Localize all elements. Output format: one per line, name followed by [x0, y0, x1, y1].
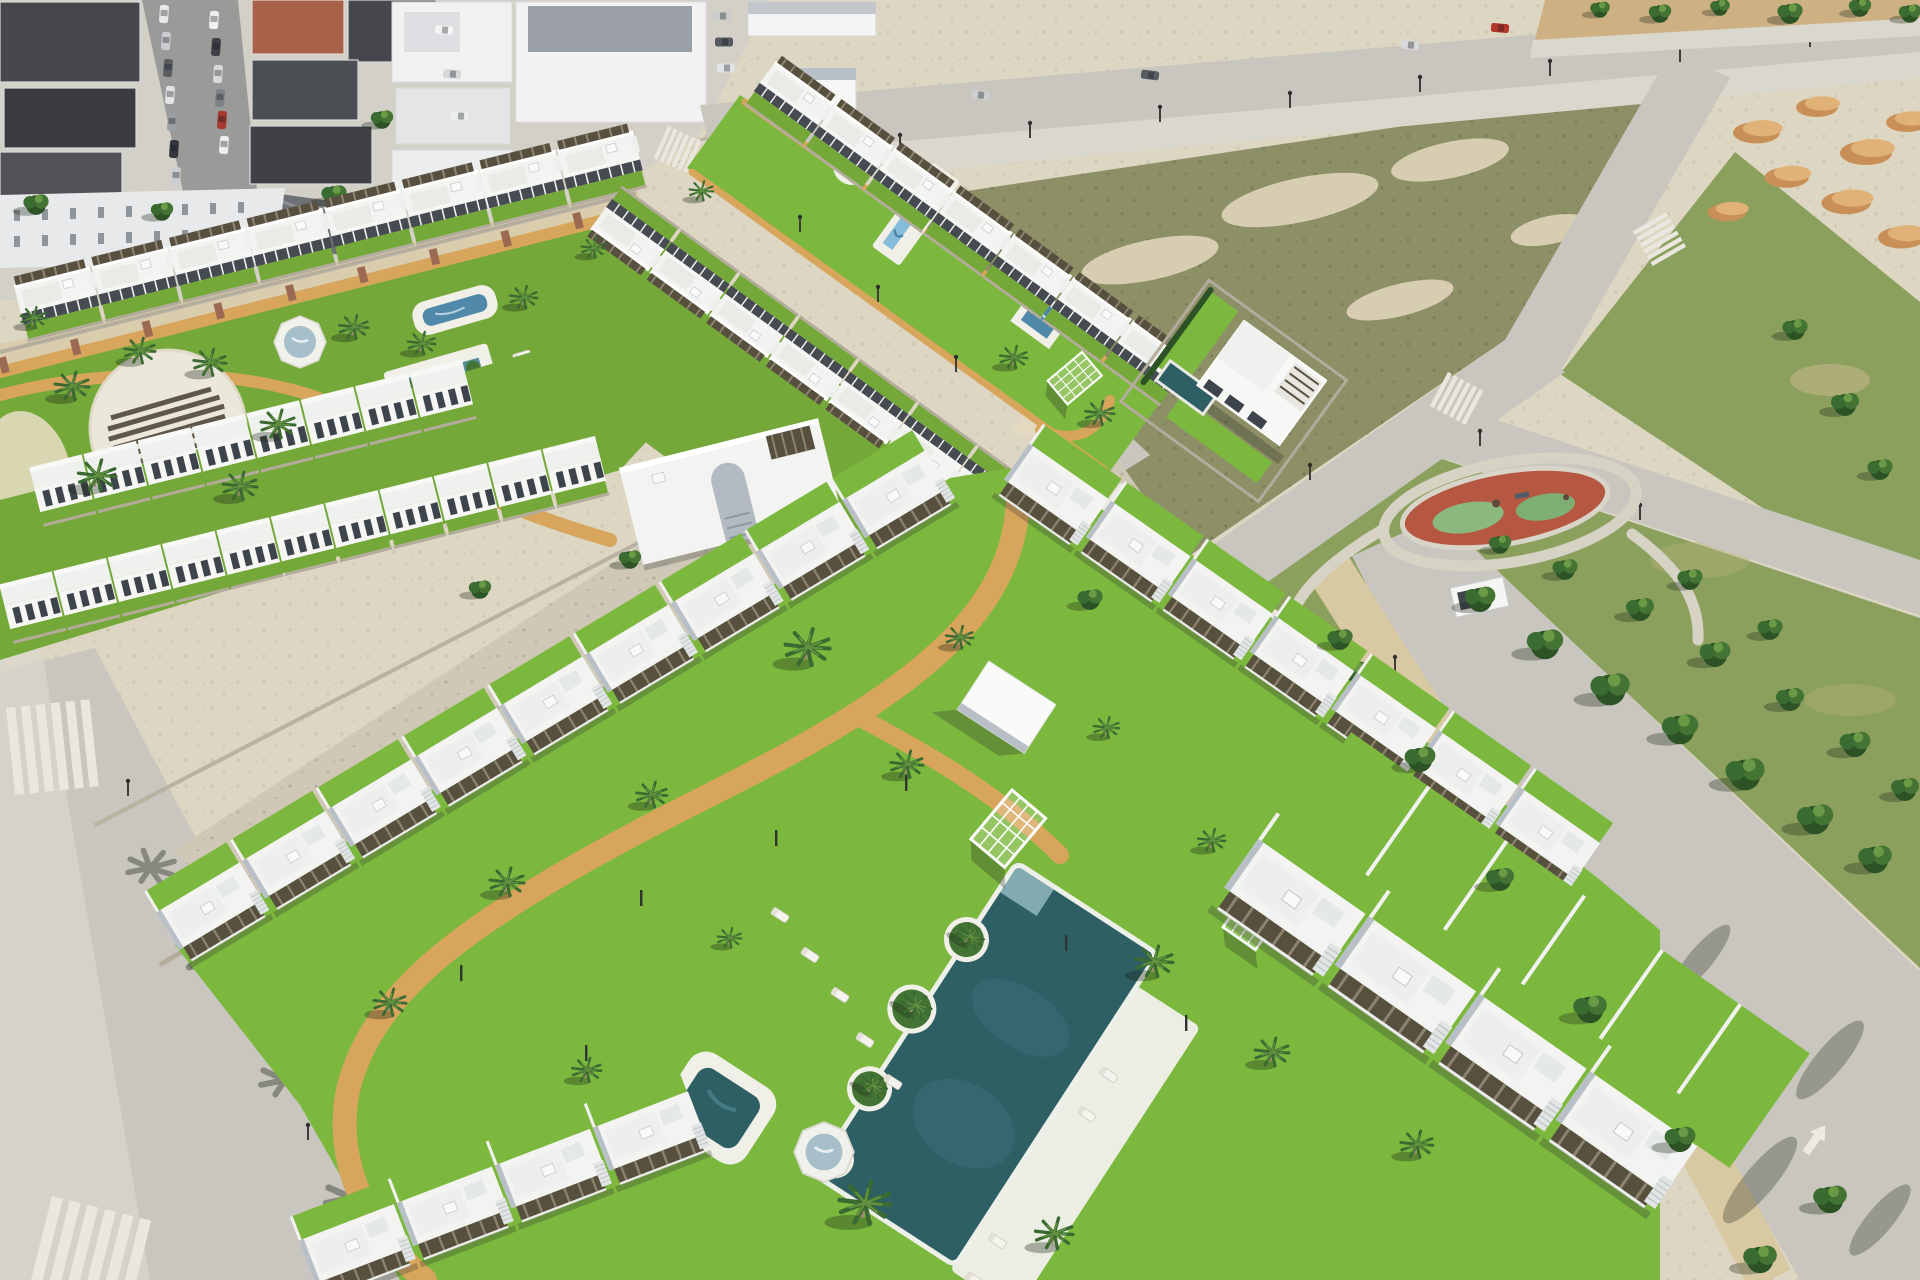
aerial-render	[0, 0, 1920, 1280]
fountain-octagon-a	[274, 316, 326, 368]
scene-canvas	[0, 0, 1920, 1280]
fountain-octagon-d	[794, 1122, 854, 1182]
